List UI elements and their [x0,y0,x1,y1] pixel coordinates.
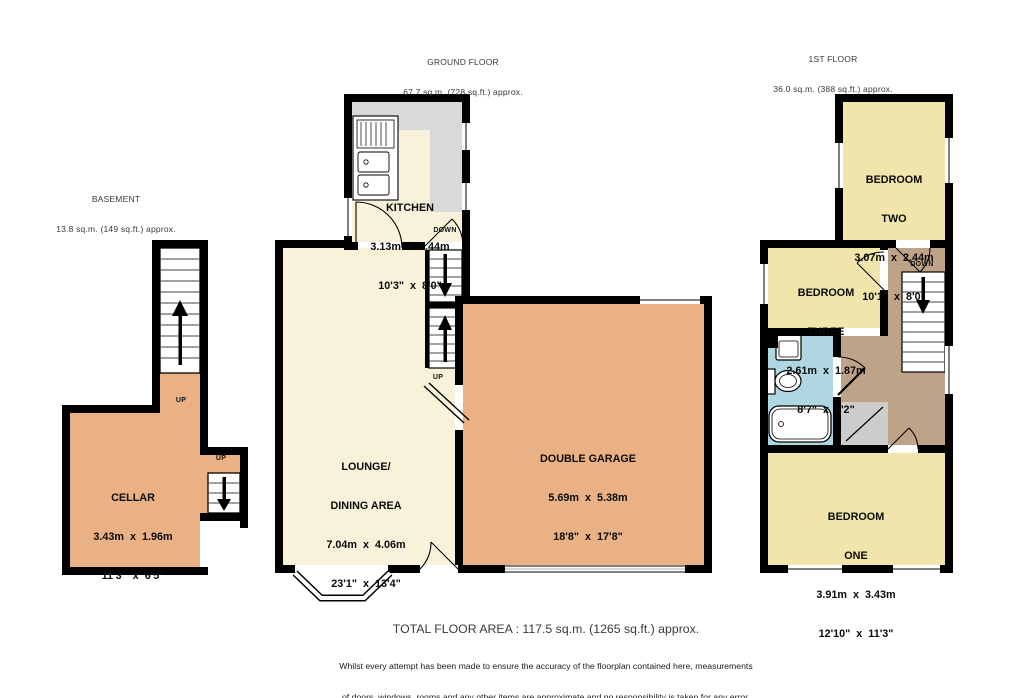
kitchen-label: KITCHEN 3.13m x 2.44m 10'3" x 8'0" [370,176,449,319]
first-header: 1ST FLOOR 36.0 sq.m. (388 sq.ft.) approx… [773,34,893,114]
ground-down-label: DOWN [433,227,456,234]
bedroom-one-metric: 3.91m x 3.43m [816,589,895,602]
kitchen-imperial: 10'3" x 8'0" [370,280,449,293]
garage-name: DOUBLE GARAGE [540,453,636,466]
bedroom-two-imperial: 10'1" x 8'0" [854,291,933,304]
garage-metric: 5.69m x 5.38m [540,492,636,505]
bedroom-two-label: BEDROOM TWO 3.07m x 2.44m 10'1" x 8'0" [854,148,933,330]
cellar-name: CELLAR [93,492,172,505]
bedroom-one-label: BEDROOM ONE 3.91m x 3.43m 12'10" x 11'3" [816,485,895,667]
garage-label: DOUBLE GARAGE 5.69m x 5.38m 18'8" x 17'8… [540,427,636,570]
first-down-label: DOWN [910,261,933,268]
bedroom-one-name: BEDROOM [816,511,895,524]
lounge-name2: DINING AREA [326,500,405,513]
bedroom-one-imperial: 12'10" x 11'3" [816,628,895,641]
cellar-metric: 3.43m x 1.96m [93,531,172,544]
bedroom-three-metric: 2.61m x 1.87m [786,365,865,378]
ground-area: 67.7 sq.m. (728 sq.ft.) approx. [403,87,523,97]
total-floor-area: TOTAL FLOOR AREA : 117.5 sq.m. (1265 sq.… [393,622,699,636]
ground-header: GROUND FLOOR 67.7 sq.m. (728 sq.ft.) app… [403,37,523,117]
bedroom-two-name2: TWO [854,213,933,226]
lounge-label: LOUNGE/ DINING AREA 7.04m x 4.06m 23'1" … [326,435,405,617]
bathtub-tap [779,422,784,427]
cellar-imperial: 11'3" x 6'5" [93,570,172,583]
cellar-label: CELLAR 3.43m x 1.96m 11'3" x 6'5" [93,466,172,609]
disclaimer-line-2: of doors, windows, rooms and any other i… [337,692,755,698]
ground-title: GROUND FLOOR [403,57,523,67]
bedroom-one-name2: ONE [816,550,895,563]
disclaimer-line-1: Whilst every attempt has been made to en… [337,661,755,671]
ground-up-label: UP [433,374,443,381]
bedroom-three-name2: THREE [786,326,865,339]
basement-stair-landing-floor [160,373,200,413]
bedroom-two-name: BEDROOM [854,174,933,187]
lounge-metric: 7.04m x 4.06m [326,539,405,552]
basement-up-label: UP [176,397,186,404]
basement-header: BASEMENT 13.8 sq.m. (149 sq.ft.) approx. [56,174,176,254]
first-area: 36.0 sq.m. (388 sq.ft.) approx. [773,84,893,94]
basement-landing-opening [200,473,208,513]
basement-title: BASEMENT [56,194,176,204]
lounge-imperial: 23'1" x 13'4" [326,578,405,591]
basement-area: 13.8 sq.m. (149 sq.ft.) approx. [56,224,176,234]
kitchen-name: KITCHEN [370,202,449,215]
bedroom-three-imperial: 8'7" x 6'2" [786,404,865,417]
lounge-name: LOUNGE/ [326,461,405,474]
cellar-up-label: UP [216,455,226,462]
disclaimer: Whilst every attempt has been made to en… [337,640,755,698]
first-title: 1ST FLOOR [773,54,893,64]
floorplan-page: BASEMENT 13.8 sq.m. (149 sq.ft.) approx.… [0,0,1020,698]
garage-imperial: 18'8" x 17'8" [540,531,636,544]
kitchen-metric: 3.13m x 2.44m [370,241,449,254]
bedroom-three-label: BEDROOM THREE 2.61m x 1.87m 8'7" x 6'2" [786,261,865,443]
bedroom-three-name: BEDROOM [786,287,865,300]
